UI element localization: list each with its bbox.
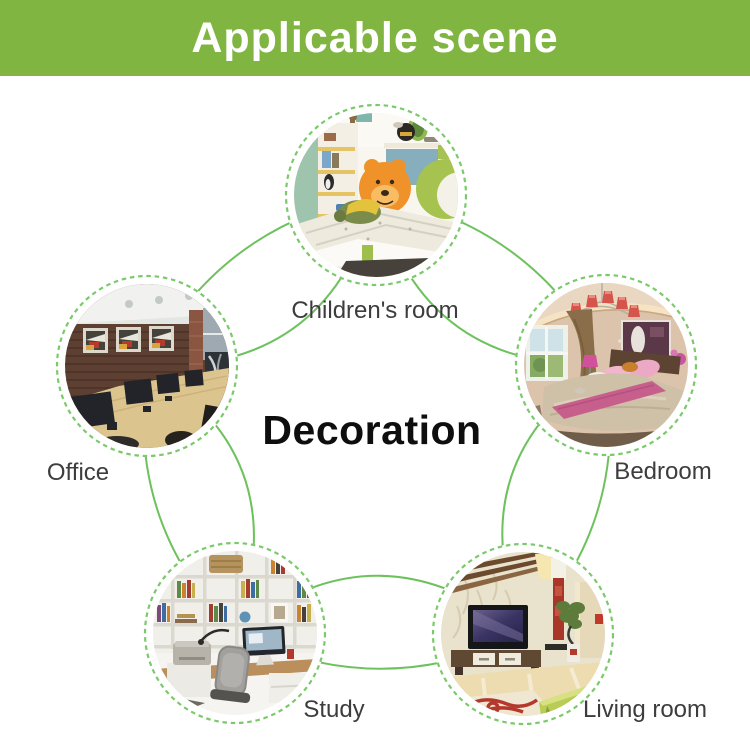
- diagram-center-title: Decoration: [262, 407, 481, 454]
- bedroom-photo: [524, 283, 688, 447]
- scene-label-study: Study: [303, 696, 364, 724]
- scene-label-bedroom: Bedroom: [614, 458, 711, 486]
- scene-label-office: Office: [47, 459, 109, 487]
- scene-diagram-canvas: [0, 0, 750, 750]
- childrens-room-photo: [294, 113, 483, 277]
- scene-label-childrens-room: Children's room: [291, 297, 458, 325]
- scene-label-living-room: Living room: [583, 696, 707, 724]
- study-photo: [153, 551, 317, 715]
- applicable-scene-diagram: Decoration Children's room Office Bedroo…: [0, 76, 750, 750]
